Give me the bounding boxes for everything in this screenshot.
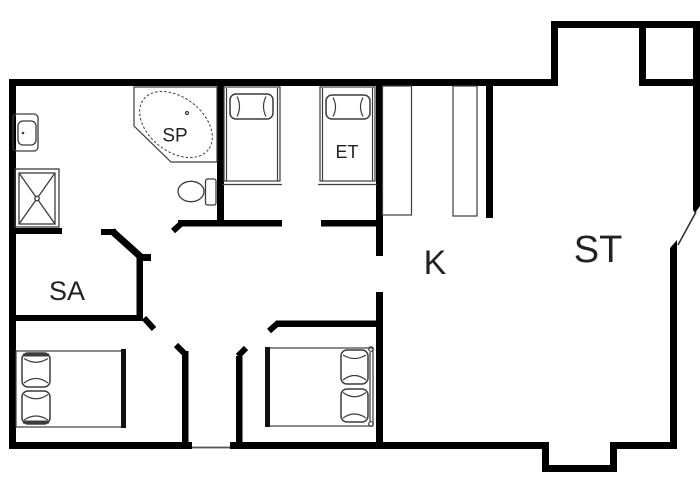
svg-text:K: K [424,244,447,282]
svg-text:SP: SP [162,126,187,147]
svg-text:ST: ST [574,229,623,271]
svg-text:ET: ET [335,142,358,162]
svg-text:SA: SA [49,276,85,306]
